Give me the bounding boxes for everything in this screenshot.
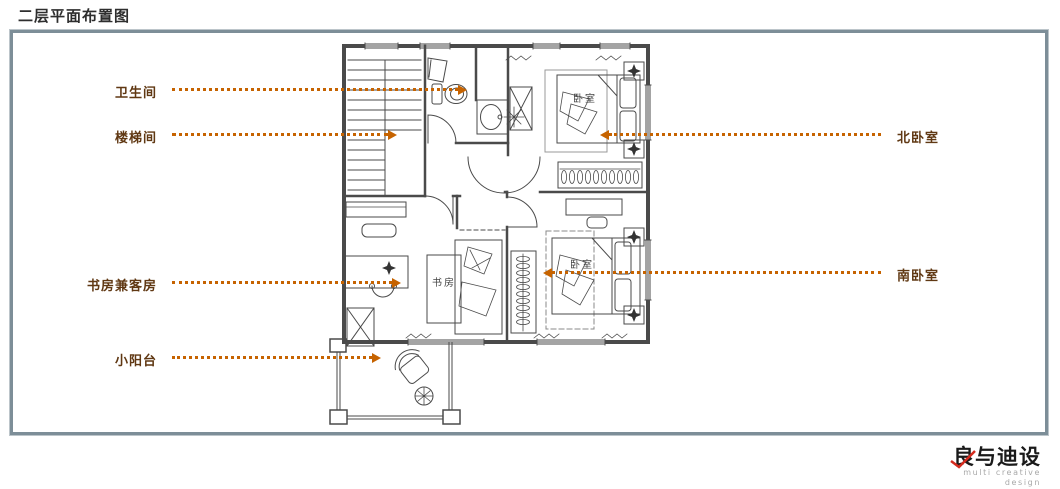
shower-shelf-icon xyxy=(428,58,447,82)
floor-plan: 卧室 xyxy=(0,0,1060,489)
callout-stairwell: 楼梯间 xyxy=(7,127,157,146)
study-room-label: 书房 xyxy=(432,276,456,289)
arrow-study-guest xyxy=(392,278,401,288)
leader-study-guest xyxy=(172,281,392,284)
north-bedroom-room-label: 卧室 xyxy=(573,92,597,105)
south-bedroom-room-label: 卧室 xyxy=(570,258,594,271)
sink-icon xyxy=(477,100,508,134)
presentation-slide: 二层平面布置图 xyxy=(0,0,1060,489)
logo-chinese-text: 良与迪设 xyxy=(925,446,1041,468)
arrow-north-bedroom xyxy=(600,130,609,140)
arrow-stairwell xyxy=(388,130,397,140)
balcony-chair-icon xyxy=(390,344,433,387)
leader-balcony xyxy=(172,356,372,359)
callout-bathroom: 卫生间 xyxy=(7,82,157,101)
callout-balcony: 小阳台 xyxy=(7,350,157,369)
leader-bathroom xyxy=(172,88,458,91)
company-logo: 良与迪设 multi creative design xyxy=(925,446,1041,488)
callout-south-bedroom: 南卧室 xyxy=(897,265,1047,284)
leader-stairwell xyxy=(172,133,388,136)
leader-north-bedroom xyxy=(609,133,881,136)
doors xyxy=(425,115,540,227)
stairs xyxy=(348,60,421,196)
callout-north-bedroom: 北卧室 xyxy=(897,127,1047,146)
arrow-south-bedroom xyxy=(543,268,552,278)
north-bedroom: 卧室 xyxy=(504,56,644,188)
arrow-bathroom xyxy=(458,85,467,95)
south-bedroom: 卧室 xyxy=(406,199,644,338)
leader-south-bedroom xyxy=(552,271,881,274)
balcony xyxy=(330,339,460,424)
study-room: 书房 xyxy=(344,202,502,346)
arrow-balcony xyxy=(372,353,381,363)
logo-english-text: multi creative design xyxy=(925,468,1041,488)
balcony-plant-icon xyxy=(415,387,433,405)
callout-study-guest: 书房兼客房 xyxy=(7,275,157,294)
